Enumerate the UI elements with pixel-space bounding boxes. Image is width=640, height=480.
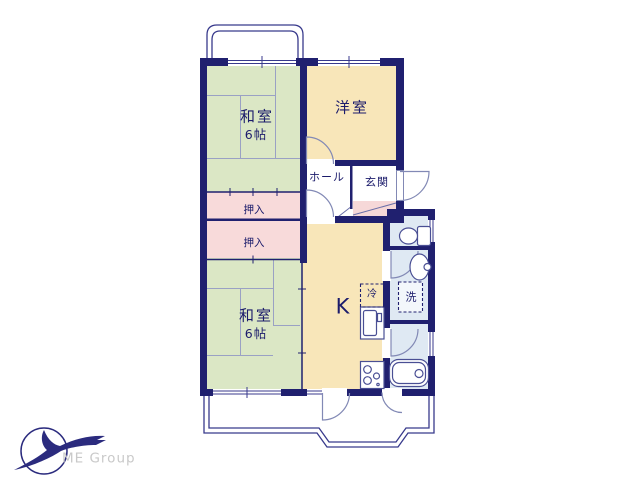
washitsu-bottom-label: 和室	[239, 309, 273, 324]
kitchen-label: K	[336, 297, 351, 318]
washitsu-top-label: 和室	[240, 110, 274, 125]
genkan-label: 玄関	[365, 177, 389, 188]
washitsu-top-size: 6帖	[245, 129, 267, 142]
yoshitsu-label: 洋室	[335, 101, 369, 116]
laundry-label: 洗	[406, 292, 417, 303]
stove-icon	[361, 362, 385, 389]
fridge-label: 冷	[367, 290, 377, 300]
kitchen-balcony-door	[323, 393, 350, 420]
bathtub-icon	[390, 360, 429, 387]
kitchen-sink-icon	[361, 307, 385, 339]
washitsu-bottom-size: 6帖	[245, 328, 267, 341]
hall-kitchen-door	[307, 190, 334, 217]
closet-top-label: 押入	[244, 205, 265, 216]
entrance-door-leaf	[397, 171, 404, 201]
hall-label: ホール	[309, 172, 345, 183]
floorplan-page: 和室 6帖 洋室 ホール 玄関 押入 押入 和室 6帖 K 冷 洗 ME Gro…	[0, 0, 640, 480]
closet-bottom-label: 押入	[244, 238, 265, 249]
company-name: ME Group	[62, 452, 136, 466]
balcony-bottom-outline	[204, 396, 434, 447]
floorplan-drawing	[0, 0, 640, 480]
